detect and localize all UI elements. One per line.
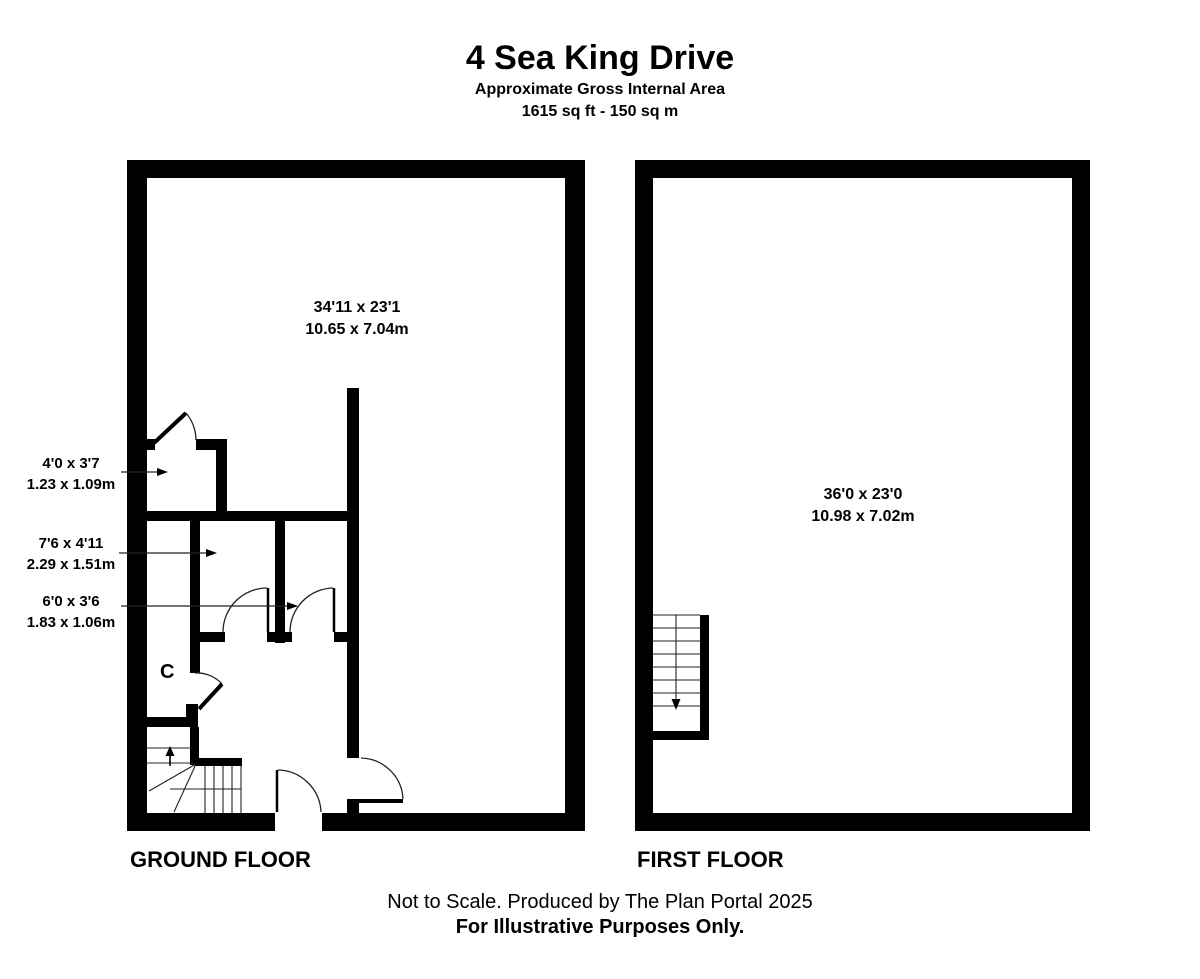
dimension-label-room3: 6'0 x 3'6 1.83 x 1.06m	[5, 591, 137, 633]
first-floor-title: FIRST FLOOR	[637, 847, 784, 873]
wall-wc-right	[216, 439, 227, 515]
first-floor-room-label: 36'0 x 23'0 10.98 x 7.02m	[743, 484, 983, 528]
dimension-label-wc: 4'0 x 3'7 1.23 x 1.09m	[5, 453, 137, 495]
wall-small-room-bottom-left	[198, 632, 225, 642]
room-dimension-imperial: 7'6 x 4'11	[5, 533, 137, 554]
room-dimension-metric: 2.29 x 1.51m	[5, 554, 137, 575]
wall-stairwell-right	[700, 615, 709, 740]
cupboard-label: C	[160, 661, 174, 684]
wall-between-small-rooms	[275, 521, 285, 643]
wall-stairs-horizontal	[195, 758, 242, 766]
wall-hall-door-stub	[347, 799, 359, 813]
ground-floor-title: GROUND FLOOR	[130, 847, 311, 873]
page-title: 4 Sea King Drive	[0, 40, 1200, 76]
ground-floor-room-label: 34'11 x 23'1 10.65 x 7.04m	[237, 297, 477, 341]
wall-wc-top	[196, 439, 217, 450]
room-dimension-imperial: 4'0 x 3'7	[5, 453, 137, 474]
wall-mid-horizontal	[147, 511, 359, 521]
room-dimension-imperial: 34'11 x 23'1	[237, 297, 477, 319]
room-dimension-imperial: 36'0 x 23'0	[743, 484, 983, 506]
page-subtitle: Approximate Gross Internal Area	[0, 81, 1200, 99]
wall-small-room-bottom-right	[334, 632, 359, 642]
room-dimension-metric: 1.23 x 1.09m	[5, 474, 137, 495]
floorplan-page: 4 Sea King Drive Approximate Gross Inter…	[0, 0, 1200, 979]
wall-main-vertical	[347, 388, 359, 758]
footer-disclaimer: Not to Scale. Produced by The Plan Porta…	[0, 891, 1200, 914]
room-dimension-metric: 10.65 x 7.04m	[237, 319, 477, 341]
front-door-opening	[275, 812, 322, 832]
wall-stairwell-bottom	[653, 731, 709, 740]
dimension-label-room2: 7'6 x 4'11 2.29 x 1.51m	[5, 533, 137, 575]
wall-cupboard-door-stub	[186, 704, 198, 719]
ground-floor-plan	[119, 160, 585, 832]
room-dimension-metric: 1.83 x 1.06m	[5, 612, 137, 633]
floorplan-drawing	[0, 0, 1200, 979]
room-dimension-imperial: 6'0 x 3'6	[5, 591, 137, 612]
room-dimension-metric: 10.98 x 7.02m	[743, 506, 983, 528]
wall-small-room-bottom-mid	[267, 632, 292, 642]
footer-purpose: For Illustrative Purposes Only.	[0, 916, 1200, 939]
page-area: 1615 sq ft - 150 sq m	[0, 103, 1200, 121]
wall-cupboard-right	[190, 521, 200, 673]
